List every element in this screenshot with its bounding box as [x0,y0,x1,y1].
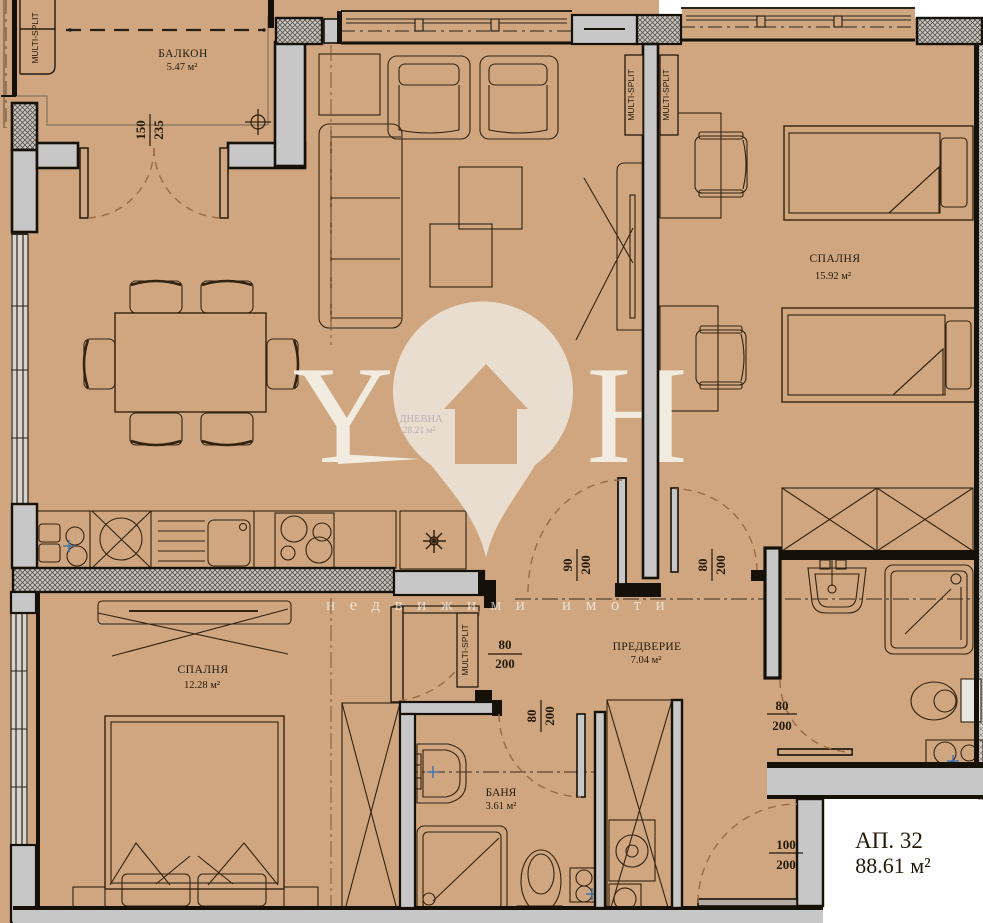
svg-text:СПАЛНЯ: СПАЛНЯ [809,253,860,265]
svg-text:СПАЛНЯ: СПАЛНЯ [177,664,228,676]
svg-text:H: H [586,338,687,493]
svg-text:АП. 32: АП. 32 [855,828,923,853]
svg-text:3.61 м²: 3.61 м² [486,801,517,812]
svg-text:MULTI-SPLIT: MULTI-SPLIT [30,12,40,63]
svg-text:имоти: имоти [562,595,679,614]
svg-text:MULTI-SPLIT: MULTI-SPLIT [460,624,470,675]
svg-text:80: 80 [695,559,710,572]
svg-text:200: 200 [776,857,796,872]
svg-text:недвижими: недвижими [326,595,539,614]
svg-text:БАНЯ: БАНЯ [486,787,517,799]
svg-text:7.04 м²: 7.04 м² [631,655,662,666]
svg-text:БАЛКОН: БАЛКОН [158,48,208,60]
svg-text:200: 200 [542,706,557,726]
svg-text:5.47 м²: 5.47 м² [167,62,198,73]
svg-text:80: 80 [499,637,512,652]
svg-text:ДНЕВНА: ДНЕВНА [399,414,443,425]
svg-text:235: 235 [151,120,166,140]
svg-text:200: 200 [495,656,515,671]
svg-text:200: 200 [713,555,728,575]
svg-text:90: 90 [560,559,575,572]
svg-text:100: 100 [776,837,796,852]
svg-text:28.21 м²: 28.21 м² [403,426,436,436]
svg-text:80: 80 [524,710,539,723]
svg-text:15.92 м²: 15.92 м² [815,271,851,282]
svg-text:88.61 м²: 88.61 м² [855,853,931,878]
svg-text:Y: Y [292,338,393,493]
svg-text:MULTI-SPLIT: MULTI-SPLIT [626,69,636,120]
svg-text:200: 200 [772,718,792,733]
svg-text:12.28 м²: 12.28 м² [184,680,220,691]
svg-text:150: 150 [133,120,148,140]
svg-text:MULTI-SPLIT: MULTI-SPLIT [661,69,671,120]
svg-text:200: 200 [578,555,593,575]
svg-text:ПРЕДВЕРИЕ: ПРЕДВЕРИЕ [613,641,682,653]
svg-text:80: 80 [776,698,789,713]
